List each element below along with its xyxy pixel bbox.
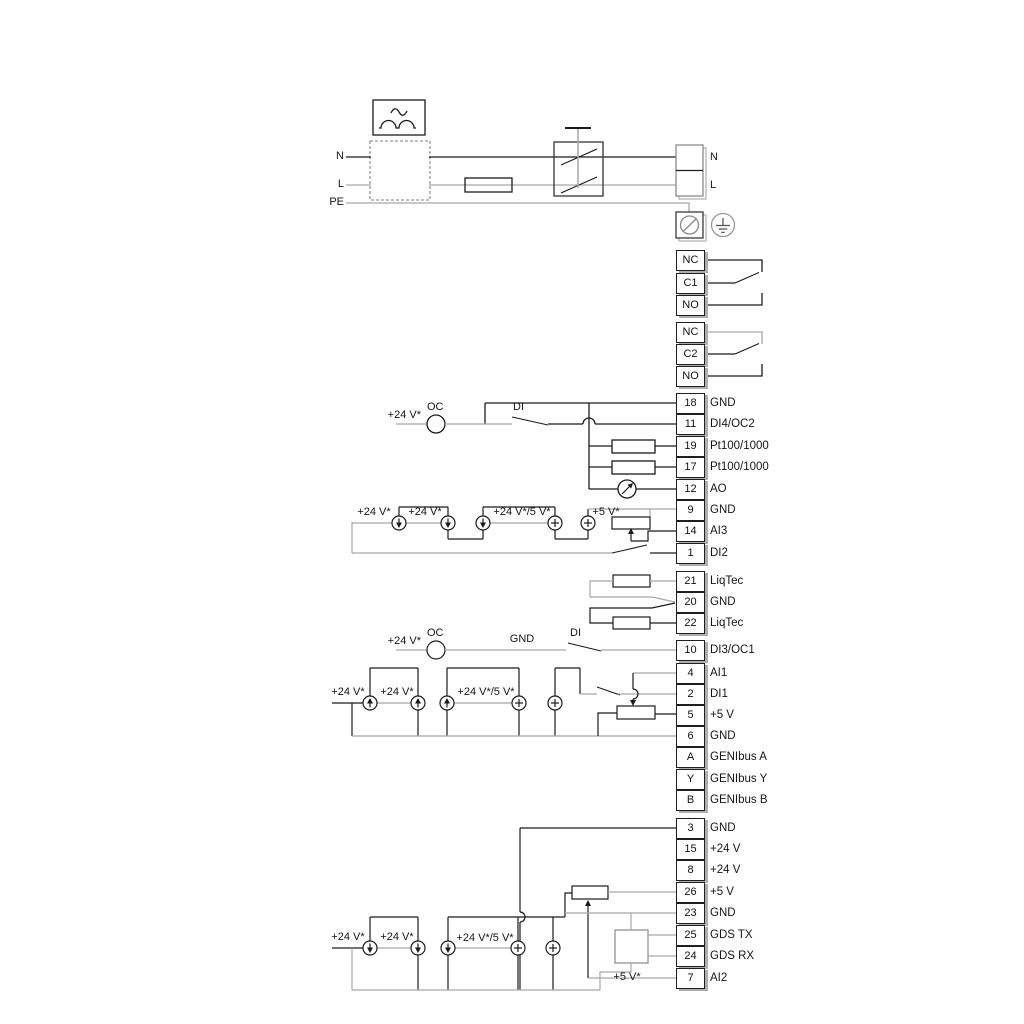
v24-label: +24 V* xyxy=(328,931,368,943)
voltage-source-icon xyxy=(581,516,595,530)
terminal-label: GDS RX xyxy=(710,950,754,962)
terminal-label: AO xyxy=(710,483,727,495)
potentiometer-ai1 xyxy=(617,706,655,719)
terminal-cell: NC xyxy=(676,322,705,343)
terminal-cell: 11 xyxy=(676,414,705,435)
terminal-cell: 12 xyxy=(676,479,705,500)
voltage-source-icon xyxy=(548,516,562,530)
v24-5v-label: +24 V*/5 V* xyxy=(478,506,566,518)
terminal-cell: 18 xyxy=(676,393,705,414)
liqtec-sensor-1 xyxy=(613,575,650,587)
oc-label: OC xyxy=(427,401,444,413)
terminal-label: +24 V xyxy=(710,843,740,855)
ac-supply-symbol-box xyxy=(373,100,425,135)
terminal-cell: 14 xyxy=(676,521,705,542)
terminal-label: Pt100/1000 xyxy=(710,440,769,452)
terminal-label: GENIbus B xyxy=(710,794,768,806)
terminal-cell: 22 xyxy=(676,613,705,634)
di-label: DI xyxy=(513,401,524,413)
terminal-cell: NC xyxy=(676,250,705,271)
current-source-icon xyxy=(363,696,377,710)
terminal-cell: A xyxy=(676,747,705,768)
pe-label: PE xyxy=(304,196,344,208)
v24-label: +24 V* xyxy=(377,931,417,943)
terminal-cell: 7 xyxy=(676,968,705,989)
di2-switch xyxy=(612,545,647,553)
terminal-cell: NO xyxy=(676,295,705,316)
terminal-cell: NO xyxy=(676,366,705,387)
v24-label: +24 V* xyxy=(377,686,417,698)
terminal-cell: 20 xyxy=(676,592,705,613)
terminal-label: GENIbus Y xyxy=(710,773,767,785)
terminal-cell: 9 xyxy=(676,500,705,521)
terminal-label: GND xyxy=(710,730,736,742)
terminal-cell: 15 xyxy=(676,839,705,860)
terminal-n-label: N xyxy=(710,151,718,163)
terminal-label: GENIbus A xyxy=(710,751,767,763)
terminal-cell: 8 xyxy=(676,860,705,881)
oc-label: OC xyxy=(427,627,444,639)
open-collector-circle xyxy=(427,641,445,659)
earth-icon xyxy=(712,214,735,237)
terminal-cell: Y xyxy=(676,769,705,790)
terminal-cell: 17 xyxy=(676,457,705,478)
terminal-label: GDS TX xyxy=(710,929,753,941)
terminal-label: GND xyxy=(710,504,736,516)
terminal-cell: C1 xyxy=(676,273,705,294)
relay2-wiring xyxy=(703,332,762,376)
potentiometer-ai2 xyxy=(572,886,608,899)
terminal-label: GND xyxy=(710,397,736,409)
relay1-wiring xyxy=(703,260,762,305)
terminal-cell: 21 xyxy=(676,571,705,592)
terminal-l-label: L xyxy=(710,179,716,191)
terminal-label: Pt100/1000 xyxy=(710,461,769,473)
di4-switch xyxy=(512,417,548,425)
terminal-cell: 2 xyxy=(676,684,705,705)
terminal-cell: 24 xyxy=(676,946,705,967)
terminal-label: DI3/OC1 xyxy=(710,644,755,656)
voltage-source-icon xyxy=(546,941,560,955)
pt100-sensor-2 xyxy=(612,461,655,474)
relay2-contact xyxy=(735,344,759,355)
terminal-cell: 26 xyxy=(676,882,705,903)
pe-wire xyxy=(346,203,689,212)
voltage-source-icon xyxy=(548,696,562,710)
pe-terminal xyxy=(676,212,706,241)
sine-icon xyxy=(391,109,407,116)
open-collector-circle xyxy=(427,415,445,433)
terminal-label: DI4/OC2 xyxy=(710,418,755,430)
terminal-label: +5 V xyxy=(710,709,734,721)
di1-switch xyxy=(597,687,620,695)
v24-label: +24 V* xyxy=(328,686,368,698)
io1-wiring xyxy=(396,403,677,498)
terminal-label: +5 V xyxy=(710,886,734,898)
terminal-cell: 25 xyxy=(676,925,705,946)
terminal-cell: C2 xyxy=(676,344,705,365)
mains-terminal-block xyxy=(676,145,706,199)
relay1-contact xyxy=(735,273,759,284)
terminal-cell: 19 xyxy=(676,436,705,457)
current-source-icon xyxy=(392,516,406,530)
pt100-sensor-1 xyxy=(612,440,655,453)
liqtec-wiring xyxy=(590,575,677,629)
di-label: DI xyxy=(570,627,581,639)
terminal-label: DI1 xyxy=(710,688,728,700)
emc-filter-box xyxy=(370,141,430,200)
current-source-icon xyxy=(411,696,425,710)
current-source-icon xyxy=(440,696,454,710)
v24-label: +24 V* xyxy=(381,409,421,421)
rectified-sine-icon xyxy=(379,121,416,128)
gds-sensor-box xyxy=(615,930,648,963)
l-label: L xyxy=(314,178,344,190)
terminal-cell: 5 xyxy=(676,705,705,726)
potentiometer-ai3 xyxy=(612,517,650,529)
terminal-label: AI1 xyxy=(710,667,727,679)
terminal-cell: 10 xyxy=(676,640,705,661)
terminal-cell: 4 xyxy=(676,663,705,684)
current-source-icon xyxy=(411,941,425,955)
terminal-label: GND xyxy=(710,822,736,834)
v5-label: +5 V* xyxy=(586,506,626,518)
terminal-cell: 1 xyxy=(676,543,705,564)
terminal-cell: 6 xyxy=(676,726,705,747)
v24-label: +24 V* xyxy=(354,506,394,518)
current-source-icon xyxy=(363,941,377,955)
terminal-label: LiqTec xyxy=(710,617,743,629)
gnd-wire-label: GND xyxy=(502,633,542,645)
wiring-diagram-page: N L PE N L OC +24 V* DI +24 V* +24 V* +2… xyxy=(0,0,1024,1024)
mains-switch xyxy=(554,128,603,196)
terminal-label: AI2 xyxy=(710,972,727,984)
terminal-label: +24 V xyxy=(710,864,740,876)
terminal-cell: B xyxy=(676,790,705,811)
terminal-label: DI2 xyxy=(710,547,728,559)
n-label: N xyxy=(314,150,344,162)
terminal-cell: 3 xyxy=(676,818,705,839)
voltage-source-icon xyxy=(512,696,526,710)
analog-meter-icon xyxy=(618,480,636,498)
current-source-icon xyxy=(476,516,490,530)
v24-label: +24 V* xyxy=(405,506,445,518)
terminal-label: LiqTec xyxy=(710,575,743,587)
terminal-label: GND xyxy=(710,907,736,919)
terminal-cell: 23 xyxy=(676,903,705,924)
io3-wiring xyxy=(332,828,677,990)
v24-5v-label: +24 V*/5 V* xyxy=(442,686,530,698)
v24-5v-label: +24 V*/5 V* xyxy=(441,932,529,944)
v24-label: +24 V* xyxy=(381,635,421,647)
di3-switch xyxy=(568,643,601,651)
v5-label: +5 V* xyxy=(607,971,647,983)
current-source-icon xyxy=(441,516,455,530)
mains-wiring xyxy=(346,100,735,241)
terminal-label: GND xyxy=(710,596,736,608)
liqtec-sensor-2 xyxy=(613,617,650,629)
terminal-label: AI3 xyxy=(710,525,727,537)
